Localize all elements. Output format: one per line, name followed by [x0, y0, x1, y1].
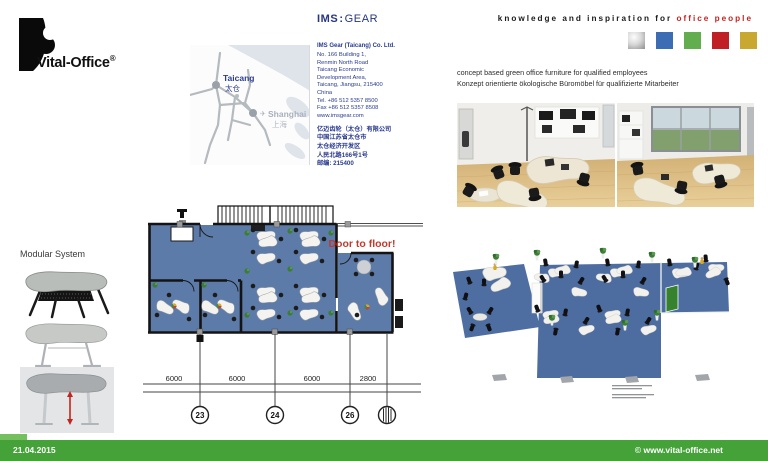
person-figure: [700, 257, 703, 264]
annotation-lines: [612, 385, 654, 398]
dimension-labels: 6000 6000 6000 2800: [166, 374, 377, 383]
taicang-dot: [212, 81, 220, 89]
color-squares: [628, 32, 757, 49]
date-label: 21.04.2015: [13, 445, 56, 455]
fax-line: Fax +86 512 5357 8508: [317, 105, 429, 113]
svg-text:24: 24: [271, 411, 280, 420]
taicang-cn-label: 太仓: [225, 83, 240, 93]
address-block: IMS Gear (Taicang) Co. Ltd. No. 166 Buil…: [317, 43, 429, 169]
address-chinese: 亿迈齿轮（太仓）有限公司 中国江苏省太仓市 太仓经济开发区 人民北路166号1号…: [317, 126, 429, 169]
phone-line: Tel. +86 512 5357 8500: [317, 98, 429, 106]
caption-de: Konzept orientierte ökologische Büromöbe…: [457, 79, 679, 90]
blue-square: [656, 32, 673, 49]
stairs: [177, 206, 333, 225]
tagline-highlight: office people: [677, 14, 754, 23]
modular-system-title: Modular System: [20, 249, 85, 259]
door-note: Door to floor!: [328, 238, 395, 250]
footer-bar: 21.04.2015 © www.vital-office.net: [0, 440, 768, 461]
floor-slabs: [453, 262, 729, 378]
tagline: knowledge and inspiration for office peo…: [498, 14, 753, 23]
dimension-grid: [143, 334, 421, 406]
photo-right-room: [617, 103, 754, 207]
ims-gear-logo: IMS:GEAR: [317, 13, 378, 25]
green-wall-panel: [666, 285, 678, 312]
office-3d-render: [440, 215, 768, 430]
silver-square: [628, 32, 645, 49]
radiators: [395, 299, 403, 328]
tagline-prefix: knowledge and inspiration for: [498, 14, 672, 23]
caption-en: concept based green office furniture for…: [457, 68, 679, 79]
green-square: [684, 32, 701, 49]
table-height-adjustable: [20, 367, 114, 433]
svg-text:6000: 6000: [304, 374, 321, 383]
floor-plan: Door to floor! 6000 6000 6000 2800 23 24…: [143, 203, 425, 433]
taicang-label: Taicang: [223, 73, 255, 83]
website-line: www.imsgear.com: [317, 113, 429, 121]
brand-wordmark: Vital-Office®: [37, 54, 115, 71]
svg-text:6000: 6000: [229, 374, 246, 383]
shanghai-dot: [249, 109, 257, 117]
brand-name: Vital-Office: [37, 55, 110, 71]
svg-text:26: 26: [346, 411, 355, 420]
website-label: © www.vital-office.net: [635, 445, 723, 455]
concept-caption: concept based green office furniture for…: [457, 68, 679, 90]
registered-mark: ®: [110, 54, 116, 63]
gold-square: [740, 32, 757, 49]
red-square: [712, 32, 729, 49]
svg-text:6000: 6000: [166, 374, 183, 383]
table-silver-legs: [26, 324, 107, 366]
table-cable-tray: [26, 272, 108, 317]
vestibule: [171, 227, 193, 241]
svg-text:23: 23: [196, 411, 205, 420]
photo-left-room: [457, 103, 615, 207]
svg-text:2800: 2800: [360, 374, 377, 383]
shanghai-label: Shanghai: [268, 109, 306, 119]
modular-tables: [18, 263, 118, 435]
plane-icon: ✈: [260, 111, 266, 118]
location-map: Taicang 太仓 ✈ Shanghai 上海: [190, 45, 310, 165]
office-photo: [457, 103, 754, 207]
shanghai-cn-label: 上海: [272, 119, 287, 129]
company-name: IMS Gear (Taicang) Co. Ltd.: [317, 43, 429, 51]
grid-markers: 23 24 26: [192, 407, 396, 424]
